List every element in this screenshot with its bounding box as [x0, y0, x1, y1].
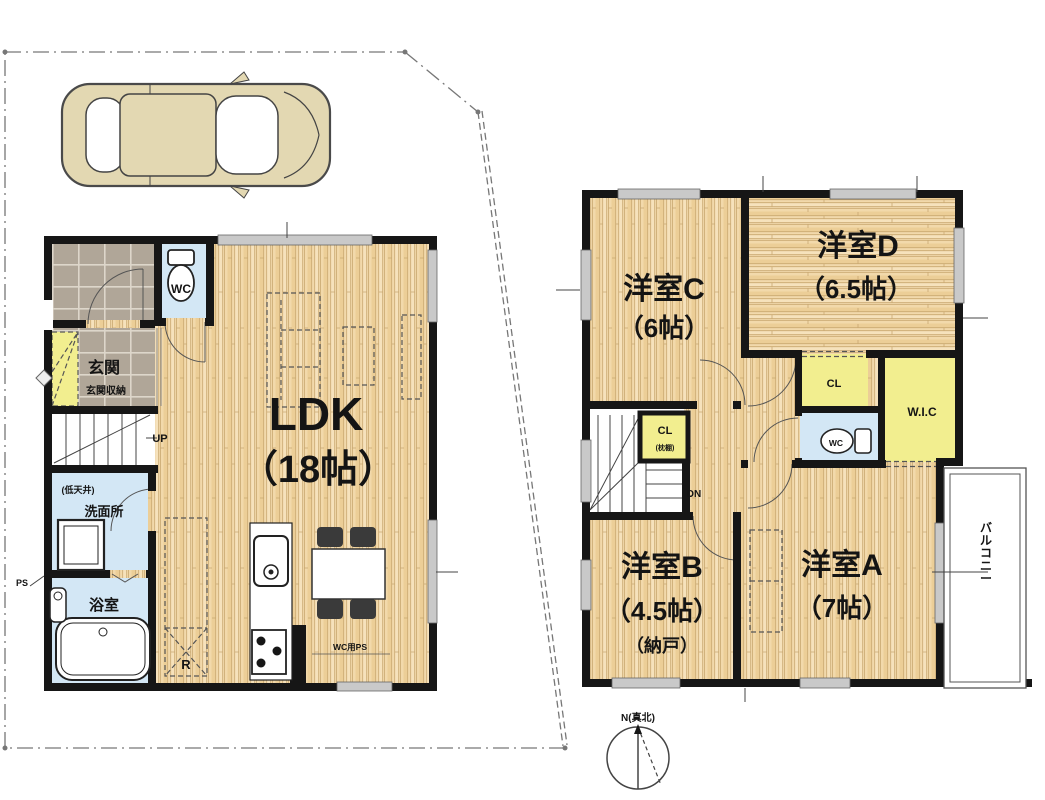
kitchen-counter	[250, 523, 292, 680]
compass-diagonal	[638, 727, 661, 785]
car-rear-window	[86, 98, 124, 172]
first-floor-plan: LDK （18帖） 玄関 玄関収納 WC UP (低天井) 洗面所 浴室 PS …	[16, 222, 458, 691]
ldk-label: LDK	[269, 388, 364, 440]
entrance-storage-label: 玄関収納	[86, 384, 126, 397]
entrance-label: 玄関	[88, 358, 120, 377]
bathroom-label: 浴室	[89, 596, 119, 614]
kitchen-sink	[254, 536, 288, 586]
porch-tile	[52, 244, 155, 320]
washroom-label: 洗面所	[84, 504, 123, 519]
compass-north-label: N(真北)	[621, 711, 655, 724]
room-c-size-label: （6帖）	[618, 313, 710, 343]
stairs-up-label: UP	[152, 433, 167, 445]
bathtub	[56, 618, 150, 680]
floor-plan-svg: LDK （18帖） 玄関 玄関収納 WC UP (低天井) 洗面所 浴室 PS …	[0, 0, 1045, 800]
room-a-label: 洋室A	[801, 548, 883, 582]
kitchen-stove	[252, 630, 286, 674]
room-d-label: 洋室D	[817, 229, 899, 263]
car-windshield	[216, 96, 278, 174]
wic-label: W.I.C	[907, 405, 937, 419]
hall-closet-label: CL	[658, 425, 673, 437]
stairs-area	[52, 414, 155, 465]
room-b-label: 洋室B	[621, 550, 703, 584]
hall-closet-box	[640, 413, 688, 461]
room-b-note-label: （納戸）	[626, 635, 698, 656]
floorplan-page: LDK （18帖） 玄関 玄関収納 WC UP (低天井) 洗面所 浴室 PS …	[0, 0, 1045, 800]
car-illustration	[62, 72, 330, 198]
room-c-label: 洋室C	[623, 272, 705, 306]
compass-arrowhead	[634, 724, 642, 734]
refrigerator-label: R	[181, 657, 191, 672]
toilet-1f-label: WC	[171, 282, 191, 296]
toilet-2f-label: WC	[829, 438, 843, 448]
low-ceiling-note: (低天井)	[62, 484, 95, 495]
balcony-label: バルコニー	[980, 521, 992, 585]
car-roof	[120, 94, 216, 176]
closet-d-label: CL	[827, 378, 842, 390]
hall-closet-note: (枕棚)	[656, 443, 675, 452]
entrance-opening	[43, 300, 53, 330]
pipe-space-label: PS	[16, 578, 28, 588]
compass: N(真北)	[607, 711, 669, 789]
stairs-down-label: DN	[687, 489, 701, 500]
wc-pipe-space-label: WC用PS	[333, 642, 367, 652]
room-b-size-label: （4.5帖）	[605, 596, 719, 626]
ldk-size-label: （18帖）	[240, 449, 396, 491]
washing-machine	[58, 520, 104, 570]
second-floor-plan: 洋室C （6帖） 洋室D （6.5帖） CL W.I.C WC CL (枕棚) …	[556, 176, 1032, 702]
room-d-size-label: （6.5帖）	[799, 274, 913, 304]
room-a-size-label: （7帖）	[796, 593, 888, 623]
shower-unit	[50, 588, 66, 622]
